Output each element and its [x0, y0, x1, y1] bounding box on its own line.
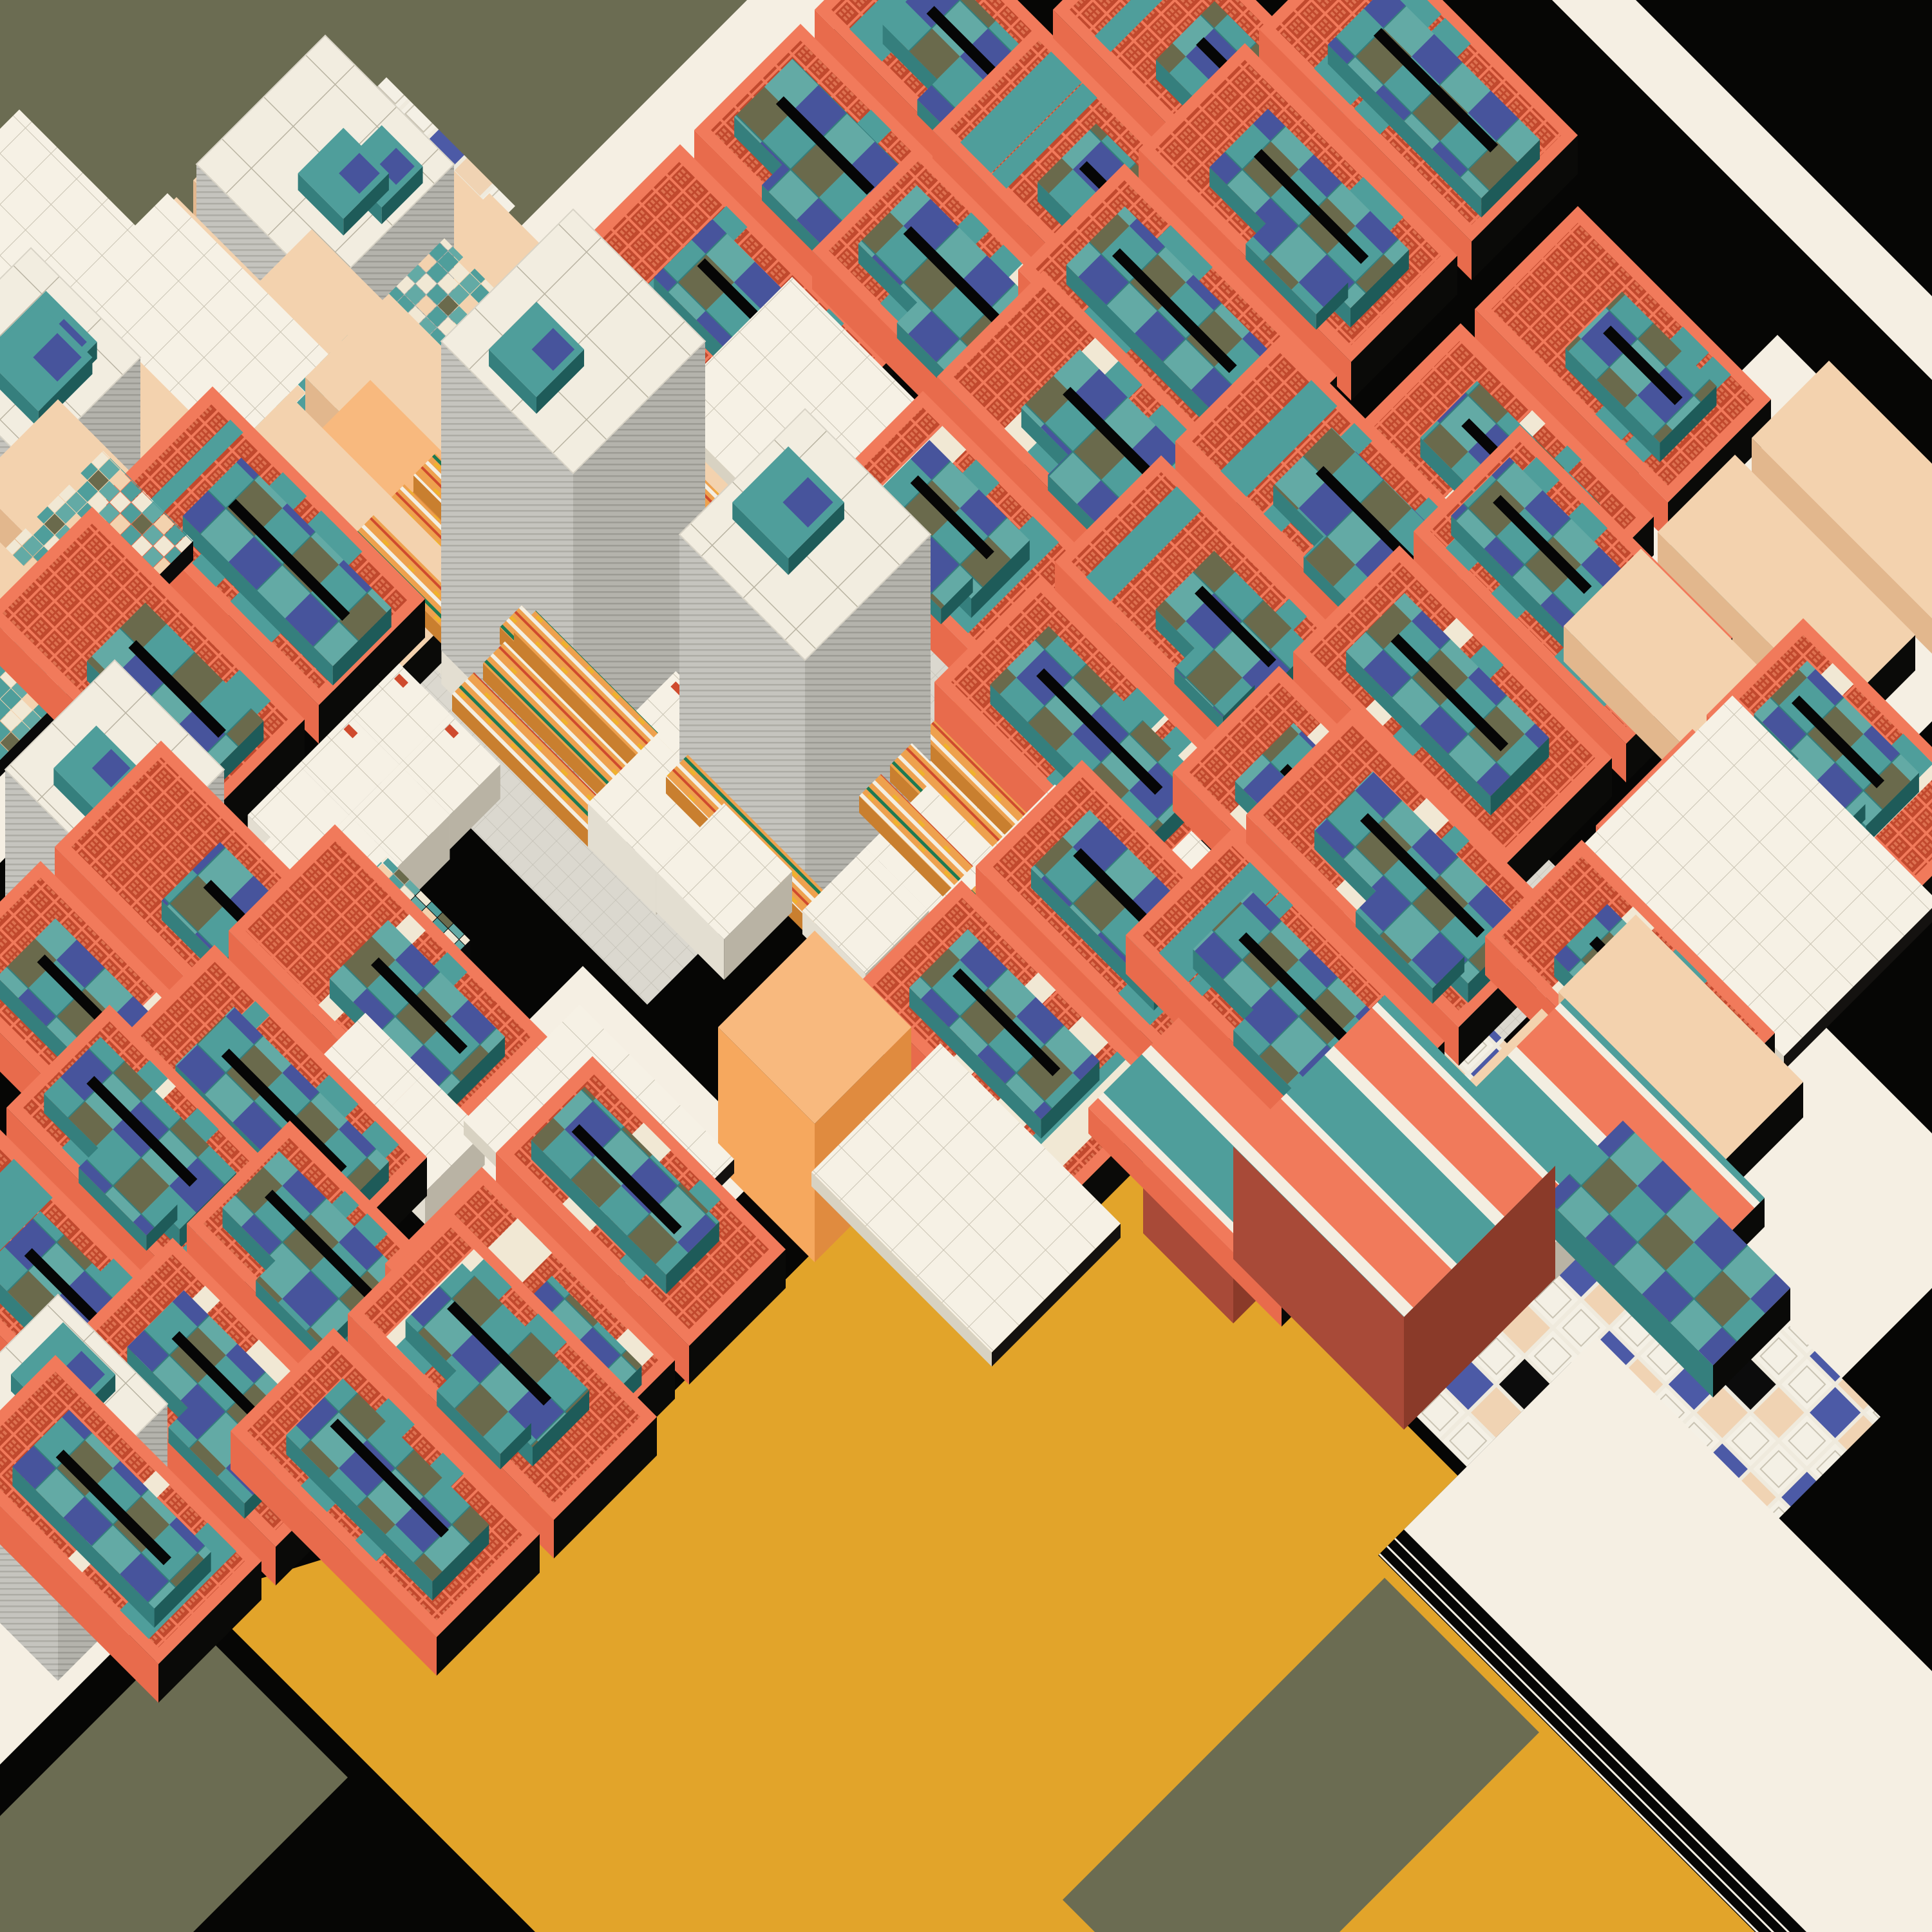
generative-city-canvas: [0, 0, 1932, 1932]
isometric-city-scene: [0, 0, 1932, 1932]
